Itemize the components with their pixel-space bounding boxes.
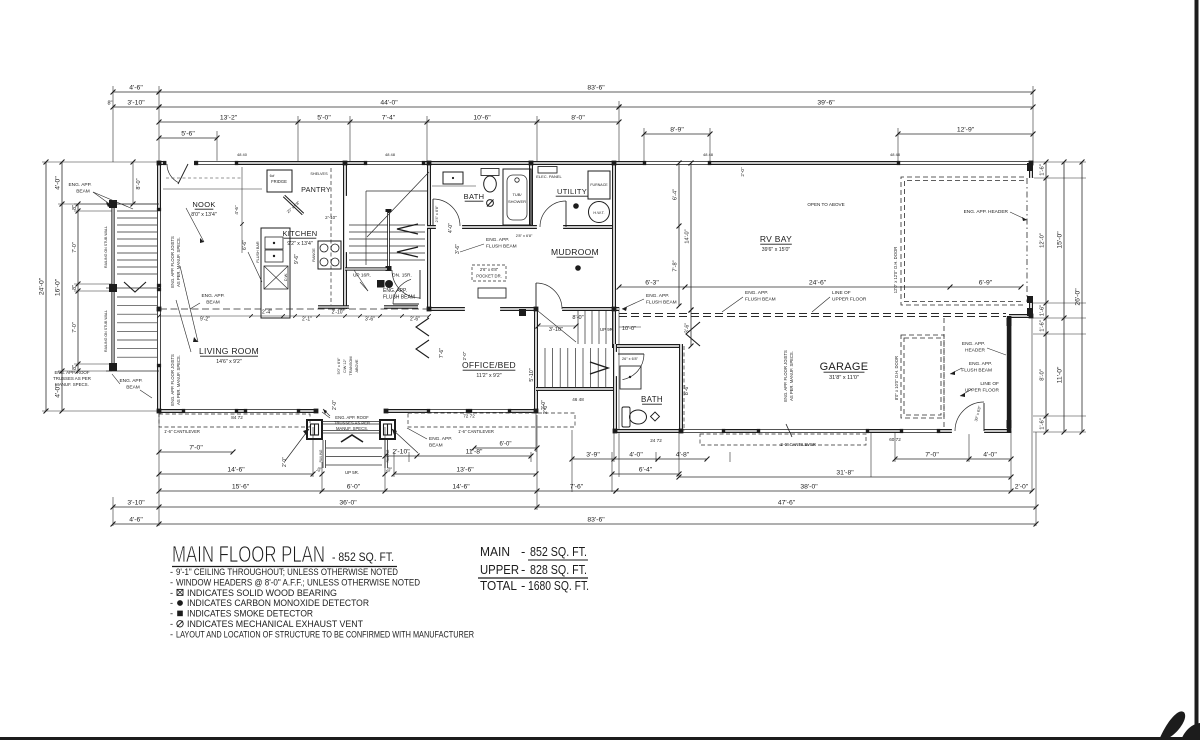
svg-text:LIVING ROOM: LIVING ROOM	[199, 346, 259, 356]
svg-text:FLUSH BEAM: FLUSH BEAM	[383, 295, 415, 301]
svg-text:39'-6": 39'-6"	[817, 100, 835, 107]
svg-text:3'-10": 3'-10"	[127, 500, 145, 507]
svg-text:UP 9R.: UP 9R.	[600, 327, 614, 332]
svg-text:ENG. APP. HEADER: ENG. APP. HEADER	[964, 209, 1009, 215]
svg-text:13'-6": 13'-6"	[456, 467, 474, 474]
svg-text:12'-0": 12'-0"	[1040, 233, 1046, 248]
svg-text:1'-0" CANTILEVER: 1'-0" CANTILEVER	[780, 442, 816, 447]
svg-text:UP 16R.: UP 16R.	[353, 273, 371, 279]
svg-text:3'-10": 3'-10"	[127, 100, 145, 107]
svg-text:2'-0": 2'-0"	[541, 400, 547, 410]
svg-text:15'-6": 15'-6"	[232, 484, 250, 491]
svg-text:-: -	[170, 588, 173, 598]
svg-text:8'-0": 8'-0"	[571, 115, 585, 122]
svg-text:3'-6": 3'-6"	[685, 323, 691, 333]
svg-text:RAILING ON STUB WALL: RAILING ON STUB WALL	[104, 226, 108, 268]
svg-text:INDICATES SMOKE DETECTOR: INDICATES SMOKE DETECTOR	[187, 609, 313, 619]
svg-text:7'-8": 7'-8"	[673, 260, 679, 271]
svg-text:4'-6": 4'-6"	[234, 205, 239, 215]
svg-text:2'-0": 2'-0"	[1015, 484, 1029, 491]
svg-text:UPPER: UPPER	[480, 562, 519, 577]
svg-text:BATH: BATH	[464, 192, 485, 201]
svg-text:- 852 SQ. FT.: - 852 SQ. FT.	[332, 552, 394, 564]
svg-text:7'-0": 7'-0"	[189, 445, 203, 452]
svg-text:38'-0": 38'-0"	[800, 484, 818, 491]
svg-text:4'-8": 4'-8"	[676, 452, 690, 459]
svg-text:24 72: 24 72	[650, 438, 662, 443]
svg-text:48 40: 48 40	[237, 152, 248, 157]
svg-text:36'-0": 36'-0"	[339, 500, 357, 507]
svg-text:13'-2": 13'-2"	[220, 115, 238, 122]
svg-text:6'-0": 6'-0"	[347, 484, 361, 491]
svg-text:2'6" x 6'8": 2'6" x 6'8"	[480, 267, 499, 272]
svg-text:24'-6": 24'-6"	[809, 280, 827, 287]
svg-text:ENG. APP.: ENG. APP.	[201, 293, 224, 299]
svg-text:3'-9": 3'-9"	[586, 452, 600, 459]
svg-text:7'-0": 7'-0"	[925, 452, 939, 459]
svg-text:2'-0": 2'-0"	[282, 457, 288, 467]
svg-text:72 72: 72 72	[463, 414, 475, 419]
svg-text:BEAM: BEAM	[126, 385, 140, 391]
svg-text:1'-6" CANTILEVER: 1'-6" CANTILEVER	[458, 429, 494, 434]
svg-text:UP 5R.: UP 5R.	[345, 470, 359, 475]
svg-text:5'-10": 5'-10"	[529, 368, 535, 381]
svg-text:4'-0": 4'-0"	[55, 176, 62, 190]
svg-text:11'-0": 11'-0"	[1057, 366, 1064, 383]
svg-text:24'-0": 24'-0"	[39, 277, 46, 295]
svg-text:-: -	[170, 619, 173, 629]
svg-text:POCKET DR.: POCKET DR.	[476, 274, 502, 279]
svg-text:60 72: 60 72	[889, 437, 901, 442]
svg-text:INDICATES CARBON MONOXIDE DETE: INDICATES CARBON MONOXIDE DETECTOR	[187, 598, 369, 608]
svg-text:OFFICE/BED: OFFICE/BED	[462, 360, 516, 370]
svg-text:PANTRY: PANTRY	[301, 185, 331, 194]
svg-text:KITCHEN: KITCHEN	[282, 229, 317, 238]
svg-text:FRIDGE: FRIDGE	[271, 179, 287, 184]
svg-text:ENG. APP.: ENG. APP.	[745, 290, 768, 296]
svg-text:7'-0": 7'-0"	[72, 322, 78, 333]
svg-text:INDICATES SOLID WOOD BEARING: INDICATES SOLID WOOD BEARING	[187, 588, 337, 598]
svg-text:8'0" x 10'0" O.H. DOOR: 8'0" x 10'0" O.H. DOOR	[894, 356, 899, 400]
svg-text:3'-6": 3'-6"	[365, 317, 375, 323]
svg-text:8'-0": 8'-0"	[1040, 369, 1046, 381]
svg-text:ENG. APP.: ENG. APP.	[429, 436, 452, 442]
svg-text:MANUF. SPECS.: MANUF. SPECS.	[336, 426, 368, 431]
svg-text:TRUSSES AS PER: TRUSSES AS PER	[53, 376, 91, 381]
svg-text:FLUSH BEAM: FLUSH BEAM	[745, 297, 776, 303]
svg-text:-: -	[170, 598, 173, 608]
svg-text:6'-0": 6'-0"	[500, 442, 512, 448]
svg-text:NOOK: NOOK	[192, 200, 215, 209]
svg-text:-: -	[170, 567, 173, 577]
svg-text:4'-0": 4'-0"	[983, 452, 997, 459]
svg-text:8": 8"	[72, 285, 78, 290]
svg-text:4'-0": 4'-0"	[448, 223, 454, 233]
svg-text:SHOWER: SHOWER	[508, 199, 526, 204]
svg-text:TRUSSES AS PER: TRUSSES AS PER	[334, 421, 370, 426]
svg-text:RAILING ON STUB WALL: RAILING ON STUB WALL	[104, 310, 108, 352]
svg-text:ENG. APP. ROOF: ENG. APP. ROOF	[54, 370, 89, 375]
svg-text:ENG. APP. FLOOR JOISTS: ENG. APP. FLOOR JOISTS	[170, 236, 175, 288]
svg-text:RAILING: RAILING	[319, 449, 323, 462]
svg-text:7'-0": 7'-0"	[72, 242, 78, 253]
svg-text:ENG. APP.: ENG. APP.	[969, 361, 992, 367]
svg-text:14'-0": 14'-0"	[685, 229, 691, 243]
svg-text:INDICATES MECHANICAL EXHAUST V: INDICATES MECHANICAL EXHAUST VENT	[187, 619, 363, 629]
svg-text:1'-6": 1'-6"	[1040, 305, 1046, 317]
svg-text:TRANSOM: TRANSOM	[349, 357, 353, 376]
svg-text:LINE OF: LINE OF	[832, 290, 851, 296]
svg-text:RANGE: RANGE	[312, 248, 316, 262]
svg-text:FLUSH BEAM: FLUSH BEAM	[646, 300, 677, 306]
svg-text:8": 8"	[107, 101, 112, 107]
svg-text:ENG. APP. FLOOR JOISTS: ENG. APP. FLOOR JOISTS	[783, 350, 788, 402]
svg-text:6'-3": 6'-3"	[645, 280, 659, 287]
svg-text:14'6" x 9'2": 14'6" x 9'2"	[216, 359, 242, 365]
svg-text:TUB/: TUB/	[512, 192, 522, 197]
svg-text:MANUF. SPECS.: MANUF. SPECS.	[55, 382, 89, 387]
svg-text:12'-9": 12'-9"	[957, 127, 975, 134]
svg-text:16'-0": 16'-0"	[55, 278, 62, 296]
svg-text:GARAGE: GARAGE	[820, 361, 869, 373]
svg-text:14'-6": 14'-6"	[227, 467, 245, 474]
svg-text:14'-6": 14'-6"	[452, 484, 470, 491]
svg-text:UPPER FLOOR: UPPER FLOOR	[832, 297, 867, 303]
svg-text:8'0" x 13'4": 8'0" x 13'4"	[191, 212, 217, 218]
svg-text:1'-6": 1'-6"	[1040, 320, 1046, 332]
svg-text:5'-0": 5'-0"	[317, 115, 331, 122]
svg-text:ENG. APP. FLOOR JOISTS: ENG. APP. FLOOR JOISTS	[170, 354, 175, 406]
svg-text:828 SQ. FT.: 828 SQ. FT.	[530, 562, 587, 577]
svg-text:FLUSH BAR: FLUSH BAR	[256, 241, 260, 263]
svg-text:-: -	[521, 578, 525, 593]
svg-text:-: -	[170, 629, 173, 639]
svg-text:2'8" x 6'8": 2'8" x 6'8"	[516, 234, 533, 238]
svg-text:LAYOUT AND LOCATION OF STRUCTU: LAYOUT AND LOCATION OF STRUCTURE TO BE C…	[176, 629, 474, 639]
svg-text:2'-10": 2'-10"	[332, 310, 345, 316]
svg-text:6'-4": 6'-4"	[673, 189, 679, 200]
svg-text:LINE OF: LINE OF	[980, 381, 999, 387]
svg-text:47'-6": 47'-6"	[778, 500, 796, 507]
svg-text:5'0" x 6'8": 5'0" x 6'8"	[337, 357, 341, 374]
svg-text:BEAM: BEAM	[206, 300, 220, 306]
svg-text:1'-6": 1'-6"	[1040, 418, 1046, 430]
svg-text:2'-10": 2'-10"	[392, 449, 410, 456]
svg-text:6cf: 6cf	[270, 174, 275, 178]
svg-text:UTILITY: UTILITY	[557, 187, 587, 196]
svg-text:MUDROOM: MUDROOM	[551, 247, 599, 257]
svg-text:AS PER. MANUF. SPECS.: AS PER. MANUF. SPECS.	[176, 237, 181, 287]
svg-text:9'-1" CEILING THROUGHOUT; UNLE: 9'-1" CEILING THROUGHOUT; UNLESS OTHERWI…	[176, 567, 398, 577]
svg-text:-0": -0"	[316, 468, 323, 474]
svg-text:2'-0": 2'-0"	[332, 400, 338, 410]
svg-text:AS PER. MANUF. SPECS.: AS PER. MANUF. SPECS.	[176, 355, 181, 405]
svg-text:H.W.T.: H.W.T.	[593, 211, 604, 215]
svg-text:ELEC. PANEL: ELEC. PANEL	[536, 174, 562, 179]
svg-text:RAILING: RAILING	[386, 449, 390, 462]
svg-text:C/W 12": C/W 12"	[343, 358, 347, 373]
svg-text:FLUSH BEAM: FLUSH BEAM	[961, 368, 992, 374]
svg-text:7'-6": 7'-6"	[570, 484, 584, 491]
svg-text:1'-6": 1'-6"	[1040, 164, 1046, 176]
svg-text:83'-6": 83'-6"	[587, 85, 605, 92]
svg-text:FURNACE: FURNACE	[590, 183, 608, 187]
svg-text:9'-6": 9'-6"	[294, 254, 300, 264]
svg-text:SHELVES: SHELVES	[310, 172, 328, 176]
svg-text:WINDOW HEADERS @ 8'-0" A.F.F.;: WINDOW HEADERS @ 8'-0" A.F.F.; UNLESS OT…	[176, 577, 420, 587]
svg-text:BATH: BATH	[641, 395, 663, 404]
svg-text:4'-6": 4'-6"	[129, 85, 143, 92]
svg-text:46 48: 46 48	[572, 397, 584, 402]
svg-text:31'-8": 31'-8"	[836, 470, 854, 477]
svg-text:8'-0": 8'-0"	[572, 315, 583, 321]
svg-text:5'-6": 5'-6"	[181, 131, 195, 138]
svg-text:2'-10": 2'-10"	[325, 215, 337, 220]
svg-text:ENG. APP. ROOF: ENG. APP. ROOF	[335, 415, 369, 420]
svg-text:AS PER. MANUF. SPECS.: AS PER. MANUF. SPECS.	[789, 351, 794, 401]
svg-text:12'0" x 12'0" O.H. DOOR: 12'0" x 12'0" O.H. DOOR	[893, 247, 898, 293]
svg-text:8'-0": 8'-0"	[136, 178, 142, 189]
svg-text:8'-6": 8'-6"	[684, 385, 690, 395]
svg-text:84 72: 84 72	[231, 415, 243, 420]
svg-text:ABOVE: ABOVE	[355, 359, 359, 373]
svg-text:48 48: 48 48	[890, 152, 901, 157]
svg-text:7'-4": 7'-4"	[382, 115, 396, 122]
svg-text:1680 SQ. FT.: 1680 SQ. FT.	[528, 578, 589, 593]
svg-text:48 48: 48 48	[385, 152, 396, 157]
svg-text:11'-8": 11'-8"	[466, 449, 483, 456]
svg-text:2'-6": 2'-6"	[410, 317, 420, 323]
svg-text:-: -	[170, 609, 173, 619]
svg-text:MAIN: MAIN	[480, 544, 510, 559]
svg-text:D.W.: D.W.	[284, 273, 288, 281]
svg-text:852 SQ. FT.: 852 SQ. FT.	[530, 544, 587, 559]
svg-text:-: -	[521, 562, 525, 577]
svg-text:ENG. APP.: ENG. APP.	[486, 237, 509, 243]
svg-text:TOTAL: TOTAL	[480, 578, 517, 593]
svg-text:MAIN FLOOR PLAN: MAIN FLOOR PLAN	[172, 541, 325, 567]
svg-text:11'2" x 9'2": 11'2" x 9'2"	[476, 373, 501, 379]
svg-text:3'-10": 3'-10"	[549, 327, 563, 333]
svg-text:6'-4": 6'-4"	[639, 467, 653, 474]
svg-text:2'-0": 2'-0"	[462, 351, 467, 360]
svg-text:1'-6" CANTILEVER: 1'-6" CANTILEVER	[164, 429, 200, 434]
svg-text:4'-6": 4'-6"	[129, 517, 143, 524]
svg-text:3'-6": 3'-6"	[455, 244, 461, 254]
svg-text:39'6" x 15'0": 39'6" x 15'0"	[762, 247, 791, 253]
svg-text:26'-0": 26'-0"	[1075, 288, 1082, 306]
svg-text:-: -	[521, 544, 525, 559]
svg-text:6'-6": 6'-6"	[242, 240, 248, 250]
svg-text:DN. 15R.: DN. 15R.	[392, 273, 412, 279]
svg-text:31'8" x 11'0": 31'8" x 11'0"	[829, 375, 859, 381]
svg-text:2'-4": 2'-4"	[262, 310, 272, 316]
svg-text:ENG. APP.: ENG. APP.	[119, 378, 142, 384]
svg-text:OPEN TO ABOVE: OPEN TO ABOVE	[807, 202, 844, 207]
svg-text:4'-0": 4'-0"	[629, 452, 643, 459]
svg-text:ENG. APP.: ENG. APP.	[646, 293, 669, 299]
svg-text:FLUSH BEAM: FLUSH BEAM	[486, 244, 517, 250]
svg-text:-: -	[170, 577, 173, 587]
svg-text:83'-6": 83'-6"	[587, 517, 605, 524]
svg-text:7'-6": 7'-6"	[439, 348, 445, 358]
svg-text:44'-0": 44'-0"	[380, 100, 398, 107]
svg-text:8": 8"	[72, 205, 78, 210]
svg-text:HEADER: HEADER	[965, 348, 986, 354]
svg-text:2'-1": 2'-1"	[302, 317, 312, 323]
svg-text:2'-0": 2'-0"	[740, 167, 745, 177]
svg-text:RV BAY: RV BAY	[760, 234, 792, 244]
svg-text:BEAM: BEAM	[76, 189, 90, 195]
svg-text:48 48: 48 48	[703, 152, 714, 157]
svg-text:15'-0": 15'-0"	[1057, 231, 1064, 249]
svg-text:ENG. APP.: ENG. APP.	[68, 182, 91, 188]
svg-text:6'-9": 6'-9"	[979, 280, 993, 287]
svg-text:BEAM: BEAM	[429, 443, 443, 449]
svg-text:2'4" x 6'8": 2'4" x 6'8"	[435, 205, 439, 222]
svg-text:26" x 6'8": 26" x 6'8"	[622, 357, 639, 361]
svg-text:10'-6": 10'-6"	[473, 115, 491, 122]
svg-text:ENG. APP.: ENG. APP.	[962, 341, 985, 347]
svg-text:9'2" x 13'4": 9'2" x 13'4"	[287, 241, 313, 247]
svg-text:9'-2": 9'-2"	[200, 317, 210, 323]
svg-text:8'-9": 8'-9"	[670, 127, 684, 134]
